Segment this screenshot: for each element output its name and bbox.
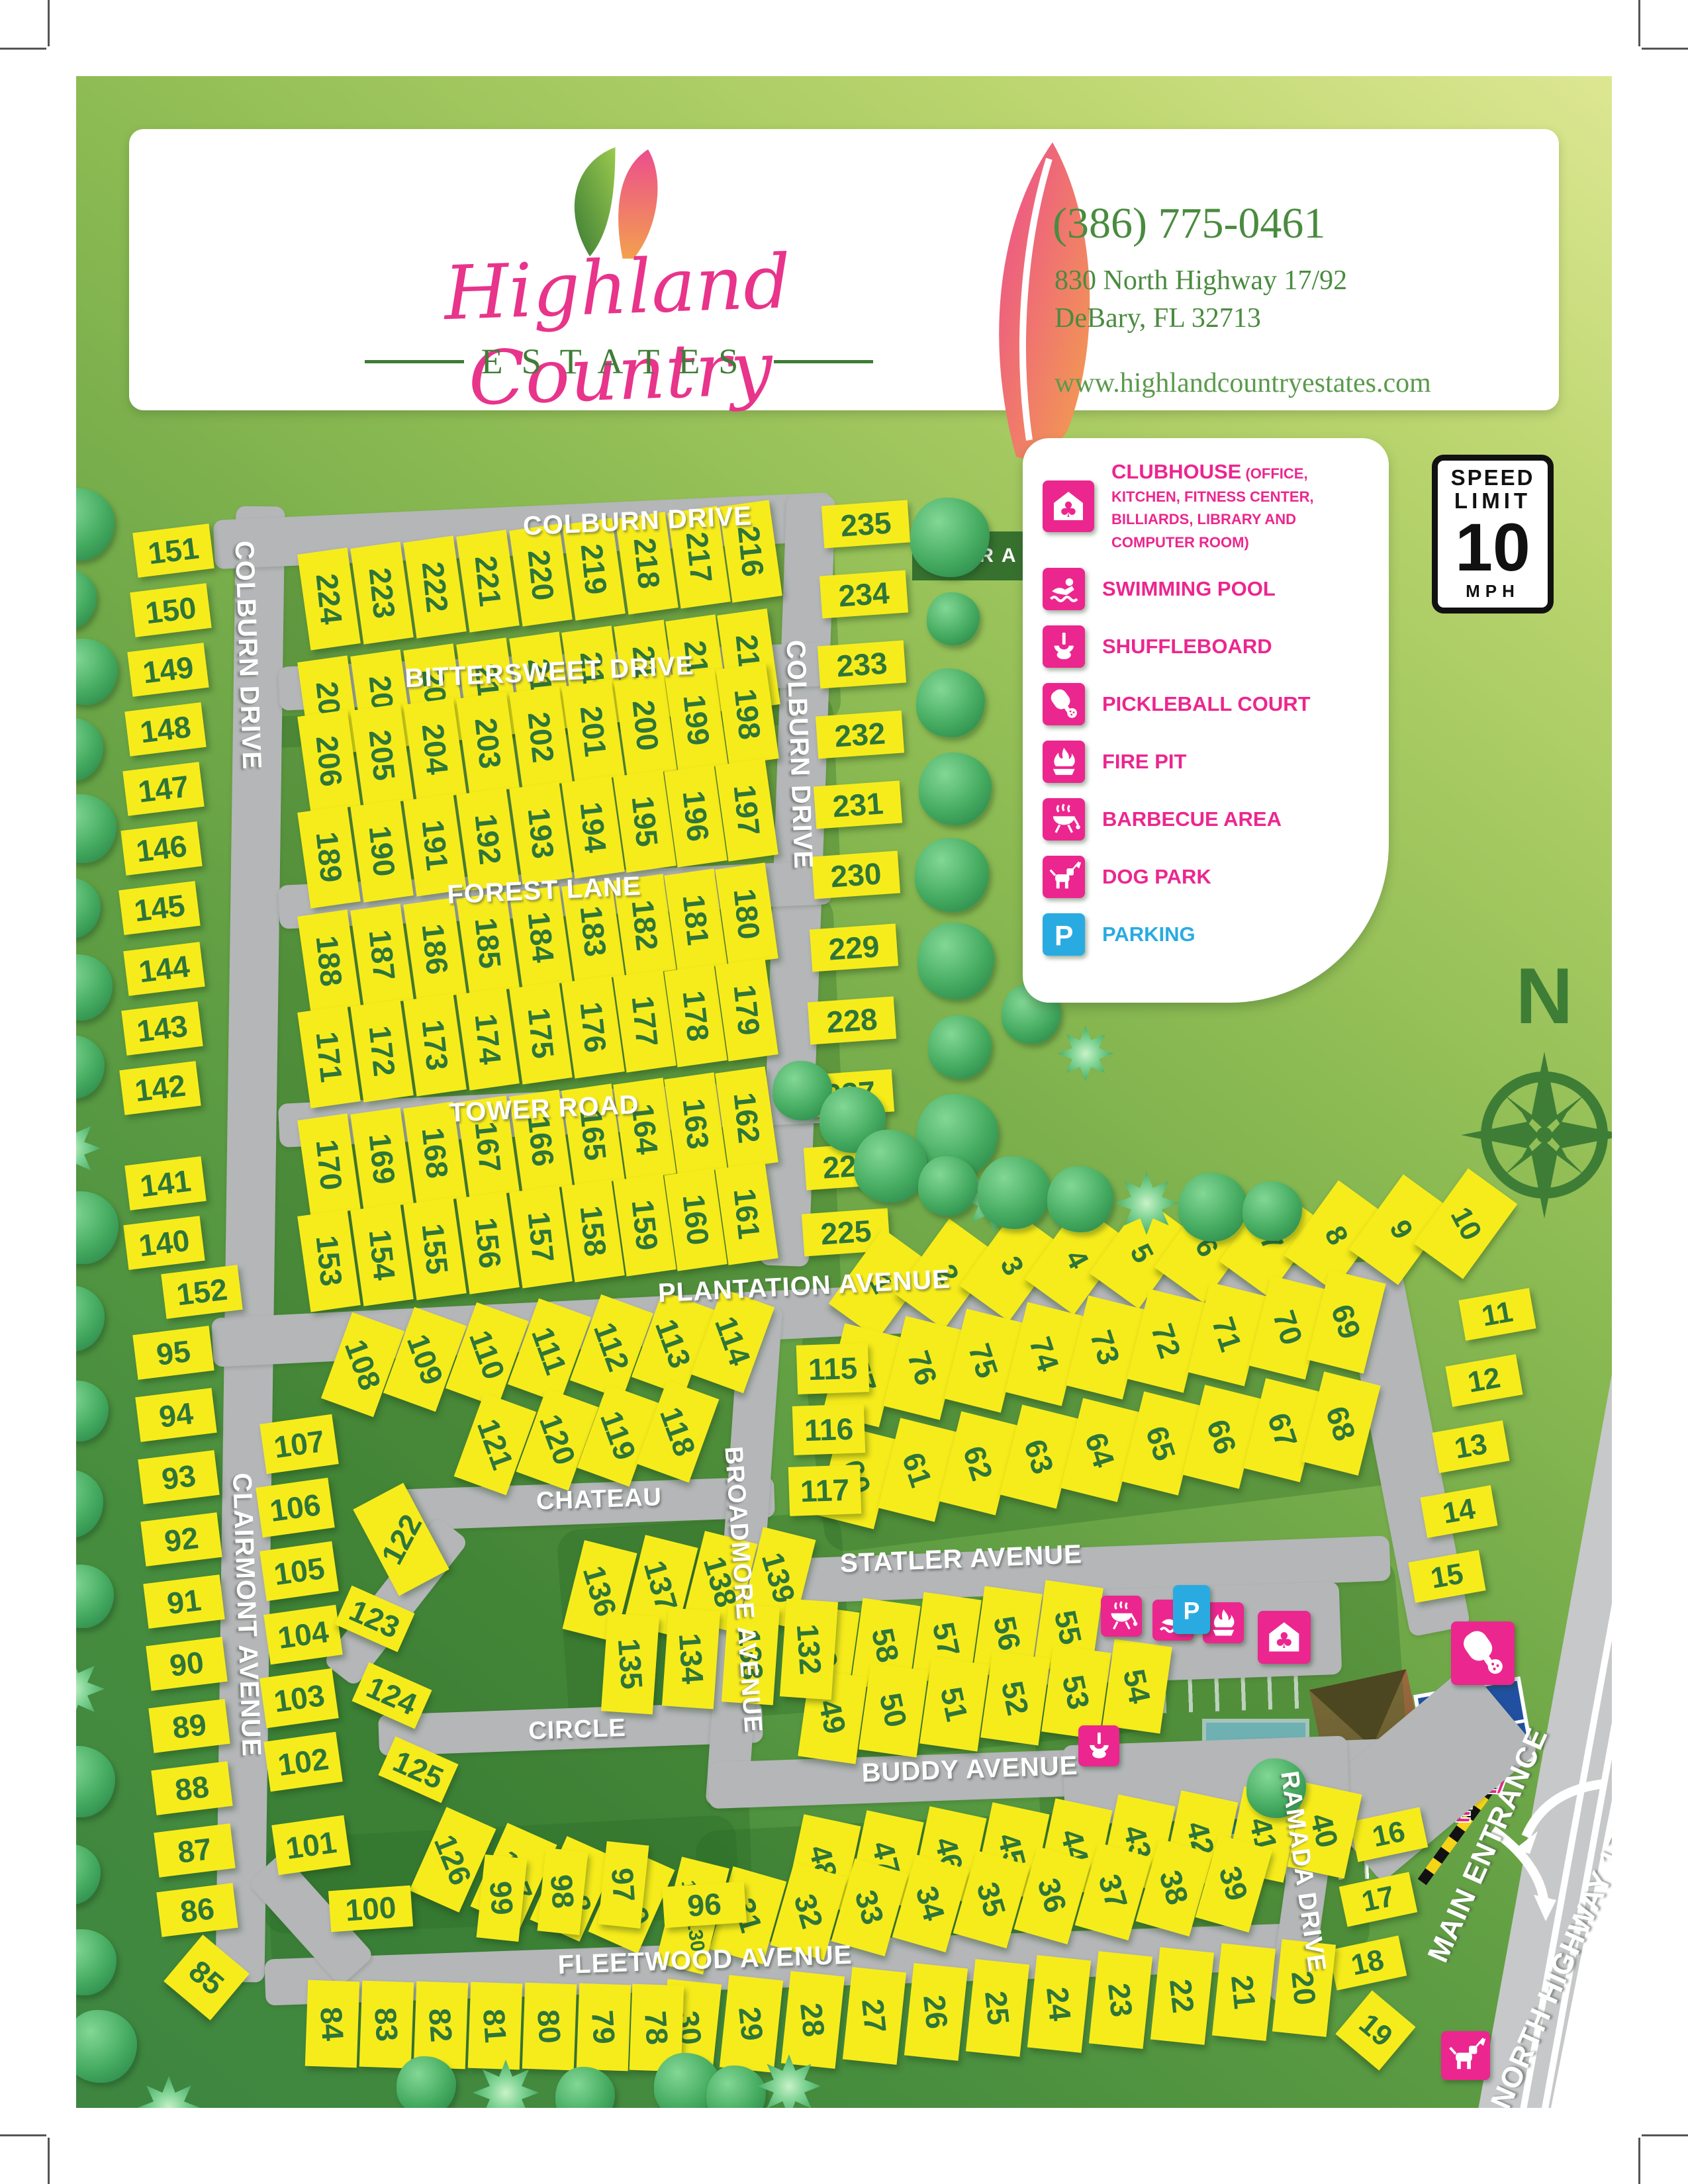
- lot-number: 97: [607, 1867, 639, 1903]
- lot-number: 117: [800, 1475, 850, 1507]
- estates-rule: [774, 360, 873, 363]
- tree-icon: [76, 1656, 105, 1722]
- lot-144: 144: [123, 942, 205, 996]
- lot-number: 170: [311, 1138, 347, 1191]
- crop-mark: [1638, 2138, 1640, 2184]
- lot-number: 116: [804, 1414, 854, 1446]
- tree-icon: [1115, 1171, 1178, 1235]
- lot-number: 83: [370, 2007, 402, 2042]
- lot-number: 204: [417, 722, 453, 776]
- lot-number: 159: [627, 1198, 663, 1251]
- lot-91: 91: [143, 1574, 224, 1629]
- lot-number: 224: [311, 572, 347, 625]
- legend-label: CLUBHOUSE (OFFICE, KITCHEN, FITNESS CENT…: [1111, 461, 1369, 553]
- lot-number: 72: [1147, 1320, 1186, 1362]
- lot-142: 142: [119, 1061, 201, 1115]
- lot-132: 132: [780, 1598, 838, 1700]
- lot-23: 23: [1089, 1951, 1152, 2049]
- lot-24: 24: [1027, 1955, 1091, 2053]
- lot-number: 38: [1155, 1867, 1194, 1908]
- lot-number: 52: [997, 1678, 1034, 1718]
- lot-number: 137: [639, 1557, 682, 1614]
- lot-number: 161: [729, 1187, 765, 1240]
- tree-icon: [1178, 1173, 1247, 1242]
- lot-number: 107: [272, 1426, 326, 1463]
- lot-number: 197: [729, 783, 765, 837]
- svg-text:♣: ♣: [1059, 497, 1078, 522]
- lot-27: 27: [843, 1967, 906, 2065]
- lot-number: 12: [1466, 1363, 1503, 1398]
- estates-rule: [365, 360, 464, 363]
- lot-21: 21: [1212, 1943, 1276, 2041]
- lot-number: 163: [678, 1097, 714, 1150]
- lot-number: 50: [875, 1690, 912, 1730]
- lot-number: 182: [627, 898, 663, 952]
- lot-number: 78: [640, 2010, 673, 2046]
- legend-label: PICKLEBALL COURT: [1102, 693, 1311, 716]
- lot-79: 79: [577, 1983, 631, 2071]
- lot-number: 16: [1370, 1817, 1407, 1852]
- lot-number: 151: [146, 532, 201, 569]
- lot-99: 99: [477, 1854, 528, 1942]
- lot-number: 173: [417, 1018, 453, 1071]
- lot-number: 73: [1086, 1327, 1125, 1369]
- tree-icon: [397, 2056, 456, 2108]
- lot-number: 175: [523, 1006, 559, 1060]
- lot-number: 223: [364, 566, 400, 619]
- lot-number: 62: [959, 1443, 998, 1484]
- lot-number: 201: [575, 704, 611, 758]
- lot-number: 121: [472, 1415, 518, 1473]
- lot-number: 63: [1019, 1436, 1059, 1478]
- lot-number: 66: [1202, 1416, 1242, 1458]
- lot-number: 154: [364, 1228, 400, 1281]
- lot-105: 105: [259, 1541, 339, 1602]
- lot-number: 153: [311, 1234, 347, 1287]
- lot-96: 96: [662, 1882, 747, 1928]
- lot-number: 203: [470, 716, 506, 770]
- lot-number: 24: [1042, 1985, 1076, 2023]
- tree-icon: [76, 954, 113, 1021]
- tree-icon: [76, 1191, 118, 1264]
- crop-mark: [48, 0, 50, 46]
- lot-52: 52: [980, 1651, 1051, 1746]
- tree-icon: [76, 488, 115, 561]
- lot-number: 106: [268, 1489, 322, 1526]
- lot-number: 114: [710, 1312, 756, 1369]
- lot-number: 180: [729, 887, 765, 940]
- lot-number: 200: [628, 698, 663, 752]
- lot-140: 140: [123, 1216, 205, 1270]
- lot-number: 92: [163, 1522, 200, 1557]
- lot-number: 206: [311, 734, 347, 788]
- lot-number: 53: [1058, 1672, 1095, 1712]
- pickleball-icon: [1451, 1621, 1515, 1685]
- header-card: Highland Country ESTATES (386) 775-0461 …: [129, 129, 1559, 410]
- lot-number: 141: [138, 1165, 193, 1201]
- tree-icon: [928, 1015, 992, 1079]
- legend-label: SHUFFLEBOARD: [1102, 635, 1272, 659]
- lot-number: 95: [155, 1336, 192, 1370]
- lot-number: 113: [651, 1315, 696, 1371]
- lot-number: 94: [158, 1398, 195, 1432]
- lot-number: 233: [835, 647, 888, 681]
- lot-234: 234: [820, 570, 908, 619]
- lot-number: 221: [470, 554, 506, 608]
- lot-22: 22: [1150, 1947, 1214, 2045]
- lot-51: 51: [919, 1657, 990, 1752]
- lot-number: 100: [344, 1891, 397, 1925]
- lot-number: 36: [1033, 1875, 1072, 1916]
- tree-icon: [76, 1565, 114, 1628]
- lot-number: 126: [429, 1831, 476, 1889]
- lot-number: 4: [1060, 1246, 1093, 1273]
- site-map-page: STORAGE N: [0, 0, 1688, 2184]
- lot-number: 82: [424, 2007, 457, 2043]
- lot-number: 74: [1025, 1334, 1064, 1375]
- lot-number: 177: [627, 994, 663, 1048]
- lot-number: 17: [1359, 1882, 1397, 1917]
- lot-number: 108: [340, 1336, 385, 1394]
- tree-icon: [555, 2067, 615, 2108]
- lot-149: 149: [127, 643, 209, 697]
- tree-icon: [927, 592, 980, 645]
- tree-icon: [1058, 1026, 1113, 1081]
- lot-number: 87: [176, 1833, 213, 1868]
- lot-98: 98: [538, 1848, 588, 1935]
- tree-icon: [76, 1844, 101, 1905]
- lot-number: 198: [729, 687, 765, 741]
- speed-word: SPEED: [1451, 467, 1535, 490]
- lot-number: 56: [989, 1614, 1026, 1653]
- lot-number: 99: [485, 1880, 518, 1916]
- lot-number: 115: [808, 1353, 858, 1385]
- lot-number: 27: [857, 1997, 891, 2034]
- lot-number: 143: [135, 1010, 189, 1046]
- lot-81: 81: [468, 1982, 522, 2070]
- lot-number: 28: [796, 2001, 829, 2038]
- tree-icon: [137, 2076, 201, 2108]
- lot-95: 95: [132, 1326, 214, 1380]
- lot-235: 235: [821, 500, 910, 549]
- lot-number: 5: [1125, 1240, 1158, 1267]
- barbecue-icon: [1043, 798, 1085, 841]
- lot-number: 118: [655, 1403, 701, 1459]
- lot-number: 55: [1050, 1608, 1087, 1647]
- crop-mark: [0, 48, 46, 50]
- lot-228: 228: [808, 997, 896, 1045]
- lot-number: 195: [627, 794, 663, 848]
- legend-label: DOG PARK: [1102, 866, 1211, 889]
- crop-mark: [1642, 2134, 1688, 2136]
- lot-number: 96: [686, 1888, 722, 1921]
- lot-number: 152: [175, 1273, 229, 1310]
- lot-number: 147: [136, 770, 191, 807]
- crop-mark: [48, 2138, 50, 2184]
- lot-150: 150: [130, 583, 211, 637]
- lot-number: 23: [1103, 1981, 1137, 2019]
- tree-icon: [76, 1929, 117, 1995]
- tree-icon: [76, 794, 117, 863]
- lot-number: 8: [1319, 1222, 1352, 1250]
- tree-icon: [910, 498, 990, 577]
- tree-icon: [76, 878, 101, 938]
- speed-value: 10: [1455, 514, 1530, 581]
- lot-number: 187: [364, 928, 400, 981]
- lot-90: 90: [146, 1637, 227, 1691]
- lot-number: 102: [276, 1743, 330, 1780]
- lot-number: 11: [1479, 1297, 1515, 1331]
- tree-icon: [76, 1381, 109, 1441]
- lot-number: 191: [417, 818, 453, 872]
- tree-icon: [76, 1035, 105, 1099]
- lot-145: 145: [118, 881, 200, 935]
- address-line2: DeBary, FL 32713: [1055, 302, 1261, 334]
- lot-number: 86: [179, 1893, 216, 1927]
- lot-number: 65: [1141, 1423, 1181, 1465]
- lot-number: 188: [311, 934, 347, 987]
- lot-54: 54: [1102, 1639, 1172, 1734]
- legend-item-shuffleboard: SHUFFLEBOARD: [1043, 625, 1369, 668]
- lot-number: 89: [171, 1709, 208, 1743]
- parking-icon: P: [1173, 1585, 1210, 1634]
- lot-106: 106: [256, 1478, 335, 1538]
- compass-north-label: N: [1458, 956, 1612, 1036]
- lot-number: 68: [1321, 1403, 1361, 1445]
- lot-229: 229: [810, 924, 898, 972]
- lot-230: 230: [812, 851, 900, 899]
- phone-number: (386) 775-0461: [1053, 199, 1325, 249]
- legend-label: SWIMMING POOL: [1102, 578, 1276, 601]
- lot-number: 222: [417, 560, 453, 614]
- lot-number: 105: [272, 1553, 326, 1590]
- lot-number: 26: [919, 1993, 953, 2030]
- lot-number: 230: [829, 858, 882, 891]
- lot-number: 174: [470, 1012, 506, 1066]
- lot-number: 234: [837, 577, 890, 611]
- lot-number: 171: [311, 1030, 347, 1083]
- tree-icon: [1243, 1181, 1302, 1241]
- tree-icon: [706, 2066, 766, 2108]
- lot-number: 134: [674, 1632, 708, 1685]
- lot-number: 112: [589, 1318, 635, 1375]
- lot-number: 146: [134, 830, 189, 866]
- pickleball-icon: [1043, 683, 1085, 725]
- lot-number: 34: [912, 1883, 950, 1924]
- lot-number: 150: [144, 592, 198, 628]
- lot-number: 167: [470, 1120, 506, 1173]
- lot-number: 192: [470, 812, 506, 866]
- lot-89: 89: [148, 1699, 230, 1753]
- lot-number: 183: [575, 904, 611, 958]
- legend-item-fire-pit: FIRE PIT: [1043, 741, 1369, 783]
- lot-number: 111: [527, 1323, 572, 1378]
- clubhouse-icon: ♣: [1043, 480, 1094, 532]
- lot-number: 205: [364, 728, 400, 782]
- lot-102: 102: [263, 1732, 343, 1792]
- lot-number: 20: [1287, 1970, 1321, 2007]
- lot-152: 152: [161, 1265, 242, 1319]
- lot-number: 25: [980, 1989, 1014, 2026]
- brand-estates-title: ESTATES: [481, 341, 757, 382]
- lot-50: 50: [859, 1663, 929, 1758]
- lot-number: 76: [903, 1347, 943, 1389]
- lot-number: 119: [596, 1407, 641, 1463]
- lot-number: 202: [523, 710, 559, 764]
- lot-number: 29: [734, 2005, 768, 2042]
- lot-number: 145: [132, 889, 187, 926]
- lot-number: 157: [523, 1210, 559, 1263]
- lot-number: 93: [160, 1460, 197, 1494]
- tree-icon: [919, 752, 992, 825]
- lot-101: 101: [271, 1815, 351, 1876]
- legend-item-dog-park: DOG PARK: [1043, 856, 1369, 898]
- lot-number: 190: [364, 824, 400, 878]
- address-line1: 830 North Highway 17/92: [1055, 265, 1347, 296]
- svg-text:P: P: [1055, 920, 1073, 952]
- lot-number: 103: [272, 1680, 326, 1717]
- lot-151: 151: [132, 523, 214, 578]
- lot-11: 11: [1458, 1288, 1536, 1341]
- lot-number: 196: [678, 789, 714, 842]
- lot-number: 85: [184, 1955, 230, 2000]
- lot-number: 67: [1263, 1410, 1303, 1451]
- lot-number: 15: [1429, 1559, 1466, 1594]
- lot-number: 220: [523, 548, 559, 602]
- lot-number: 139: [757, 1549, 800, 1606]
- lot-number: 228: [825, 1003, 878, 1037]
- tree-icon: [1047, 1166, 1113, 1232]
- lot-number: 136: [578, 1563, 621, 1619]
- lot-88: 88: [151, 1761, 232, 1815]
- legend-item-pickleball: PICKLEBALL COURT: [1043, 683, 1369, 725]
- crop-mark: [1638, 0, 1640, 46]
- lot-number: 181: [678, 893, 714, 946]
- lot-number: 144: [137, 950, 191, 987]
- lot-117: 117: [788, 1465, 862, 1516]
- lot-number: 51: [936, 1684, 973, 1724]
- tree-icon: [854, 1130, 927, 1203]
- lot-number: 219: [576, 542, 612, 596]
- lot-number: 168: [417, 1126, 453, 1179]
- lot-number: 71: [1207, 1314, 1247, 1355]
- lot-83: 83: [359, 1981, 414, 2069]
- lot-84: 84: [305, 1980, 359, 2068]
- lot-number: 37: [1094, 1871, 1133, 1912]
- legend-item-swimming-pool: SWIMMING POOL: [1043, 568, 1369, 610]
- lot-number: 140: [137, 1224, 191, 1261]
- lot-number: 120: [534, 1410, 580, 1469]
- lot-number: 162: [729, 1091, 765, 1144]
- lot-number: 81: [479, 2008, 511, 2044]
- lot-80: 80: [522, 1983, 577, 2071]
- lot-number: 70: [1268, 1307, 1308, 1349]
- lot-number: 199: [679, 693, 714, 747]
- lot-number: 9: [1384, 1216, 1417, 1244]
- lot-number: 88: [173, 1771, 211, 1805]
- lot-number: 158: [575, 1204, 611, 1257]
- lot-103: 103: [259, 1668, 339, 1729]
- lot-number: 84: [316, 2006, 348, 2042]
- lot-number: 90: [168, 1647, 205, 1681]
- lot-number: 19: [1354, 2009, 1397, 2052]
- lot-number: 193: [523, 806, 559, 860]
- lot-number: 155: [417, 1222, 453, 1275]
- lot-147: 147: [122, 762, 204, 816]
- lot-number: 229: [827, 931, 880, 964]
- tree-icon: [916, 668, 985, 737]
- lot-86: 86: [156, 1883, 238, 1937]
- lot-number: 148: [138, 711, 193, 747]
- lot-148: 148: [124, 702, 206, 756]
- legend-item-clubhouse: ♣CLUBHOUSE (OFFICE, KITCHEN, FITNESS CEN…: [1043, 461, 1369, 553]
- lot-number: 179: [729, 983, 765, 1036]
- lot-116: 116: [792, 1404, 866, 1455]
- tree-icon: [76, 1285, 105, 1351]
- street-label-chateau: CHATEAU: [536, 1483, 662, 1516]
- lot-135: 135: [601, 1613, 659, 1714]
- lot-number: 232: [833, 717, 886, 751]
- lot-number: 194: [575, 800, 611, 854]
- lot-number: 13: [1452, 1430, 1489, 1464]
- dog-park-icon: [1441, 2031, 1490, 2080]
- lot-87: 87: [154, 1823, 235, 1878]
- lot-number: 189: [311, 830, 347, 884]
- tree-icon: [76, 639, 118, 705]
- tree-icon: [918, 1156, 978, 1216]
- clubhouse-icon: ♣: [1258, 1611, 1311, 1664]
- lot-94: 94: [135, 1388, 216, 1442]
- limit-word: LIMIT: [1454, 490, 1531, 513]
- legend-item-parking: PPARKING: [1043, 913, 1369, 956]
- lot-number: 75: [964, 1340, 1004, 1382]
- tree-icon: [76, 717, 103, 781]
- lot-number: 54: [1119, 1666, 1156, 1706]
- lot-number: 184: [523, 910, 559, 964]
- parking-icon: P: [1043, 913, 1085, 956]
- lot-number: 104: [276, 1616, 330, 1653]
- lot-number: 225: [820, 1215, 872, 1249]
- shuffleboard-icon: [1043, 625, 1085, 668]
- tree-icon: [76, 569, 97, 629]
- lot-146: 146: [120, 821, 202, 876]
- lot-104: 104: [263, 1605, 343, 1665]
- lot-143: 143: [121, 1001, 203, 1056]
- lot-number: 122: [376, 1510, 427, 1569]
- lot-number: 172: [364, 1024, 400, 1077]
- lot-number: 217: [681, 530, 717, 584]
- barbecue-icon: [1101, 1596, 1142, 1637]
- lot-26: 26: [904, 1963, 968, 2061]
- website-link: www.highlandcountryestates.com: [1055, 367, 1431, 399]
- lot-number: 101: [284, 1827, 338, 1864]
- legend-label: BARBECUE AREA: [1102, 808, 1282, 831]
- lot-93: 93: [138, 1450, 219, 1504]
- tree-icon: [76, 2010, 137, 2083]
- brand-estates-row: ESTATES: [288, 341, 950, 382]
- lot-number: 35: [972, 1879, 1011, 1920]
- lot-number: 142: [133, 1069, 187, 1106]
- lot-number: 132: [792, 1623, 825, 1676]
- svg-text:P: P: [1184, 1596, 1200, 1624]
- lot-number: 135: [613, 1637, 647, 1690]
- lot-233: 233: [818, 641, 906, 689]
- lot-107: 107: [259, 1414, 339, 1475]
- tree-icon: [917, 923, 994, 999]
- lot-number: 33: [851, 1887, 889, 1928]
- dog-park-icon: [1043, 856, 1085, 898]
- legend-card: ♣CLUBHOUSE (OFFICE, KITCHEN, FITNESS CEN…: [1023, 438, 1389, 1003]
